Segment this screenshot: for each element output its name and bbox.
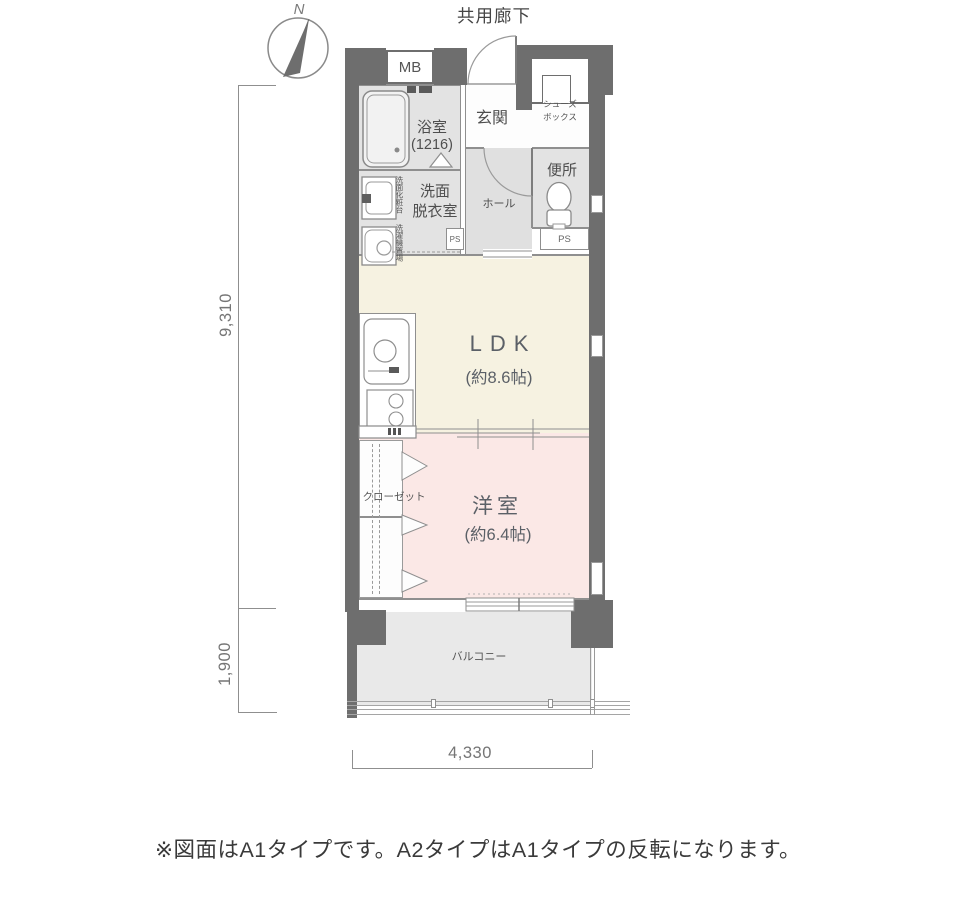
closet-area <box>359 440 403 598</box>
wall-line <box>345 598 466 600</box>
laundry-label: 洗濯機置場 <box>394 224 405 276</box>
bath-label: 浴室 <box>402 116 462 137</box>
window-slot <box>591 335 603 357</box>
closet-pole-line <box>379 444 381 594</box>
western-room-size-label: (約6.4帖) <box>438 521 558 545</box>
dimension-vertical-balcony: 1,900 <box>215 634 235 694</box>
wall-line <box>359 169 461 171</box>
dimension-line-bottom <box>352 768 592 769</box>
dimension-vertical-main: 9,310 <box>216 285 236 345</box>
ldk-label: LDK <box>439 331 559 357</box>
washroom-label-line1: 洗面 <box>402 182 468 202</box>
balcony-railing-line <box>347 709 630 710</box>
dimension-tick <box>352 750 353 768</box>
kitchen-counter <box>359 313 416 433</box>
shoe-box-label-line2: ボックス <box>532 111 588 124</box>
bath-size-label: (1216) <box>400 137 464 153</box>
wall-line <box>466 147 484 149</box>
vanity-label: 洗面化粧台 <box>394 176 405 226</box>
wall-line <box>532 147 589 149</box>
railing-post <box>431 699 436 708</box>
shoe-box-label: シューズ ボックス <box>532 98 588 124</box>
balcony-railing-line <box>347 705 630 706</box>
dimension-tick <box>592 750 593 768</box>
ldk-size-label: (約8.6帖) <box>439 364 559 388</box>
dimension-line-left <box>238 85 239 712</box>
balcony-wall-right <box>571 600 613 648</box>
balcony-fence-right <box>590 648 595 715</box>
balcony-label: バルコニー <box>443 648 515 664</box>
floorplan-canvas: MB PS PS <box>0 0 956 920</box>
pipe-space-left-label: PS <box>450 235 461 244</box>
window-slot <box>591 195 603 213</box>
toilet-label: 便所 <box>536 159 588 180</box>
meter-box: MB <box>386 50 434 84</box>
compass-icon <box>268 18 328 78</box>
washroom-label: 洗面 脱衣室 <box>402 182 468 222</box>
entrance-door-icon <box>467 36 516 84</box>
window-slot <box>591 562 603 595</box>
pipe-space-right: PS <box>540 228 589 250</box>
dimension-tick <box>238 608 276 609</box>
exterior-wall-top <box>345 48 386 85</box>
closet-label: クローゼット <box>358 489 430 504</box>
closet-pole-line <box>372 444 374 594</box>
meter-box-label: MB <box>399 59 422 76</box>
north-label: N <box>286 1 312 18</box>
shoe-box-label-line1: シューズ <box>532 98 588 111</box>
dimension-tick <box>238 712 277 713</box>
exterior-wall-left <box>345 48 359 612</box>
entrance-label: 玄関 <box>462 104 522 128</box>
dimension-horizontal: 4,330 <box>410 744 530 763</box>
hall-label: ホール <box>474 195 524 211</box>
washroom-label-line2: 脱衣室 <box>402 202 468 222</box>
western-room-label: 洋室 <box>435 490 555 520</box>
pipe-space-right-label: PS <box>558 234 571 245</box>
exterior-wall-top <box>434 48 467 85</box>
balcony-railing-line <box>347 701 630 702</box>
balcony-railing-line <box>347 714 630 715</box>
pipe-space-left: PS <box>446 228 464 250</box>
dimension-tick <box>238 85 276 86</box>
common-corridor-label: 共用廊下 <box>448 3 540 28</box>
floorplan-caption: ※図面はA1タイプです。A2タイプはA1タイプの反転になります。 <box>0 833 956 864</box>
wall-line <box>531 148 533 228</box>
closet-shelf-line <box>359 516 403 518</box>
railing-post <box>548 699 553 708</box>
